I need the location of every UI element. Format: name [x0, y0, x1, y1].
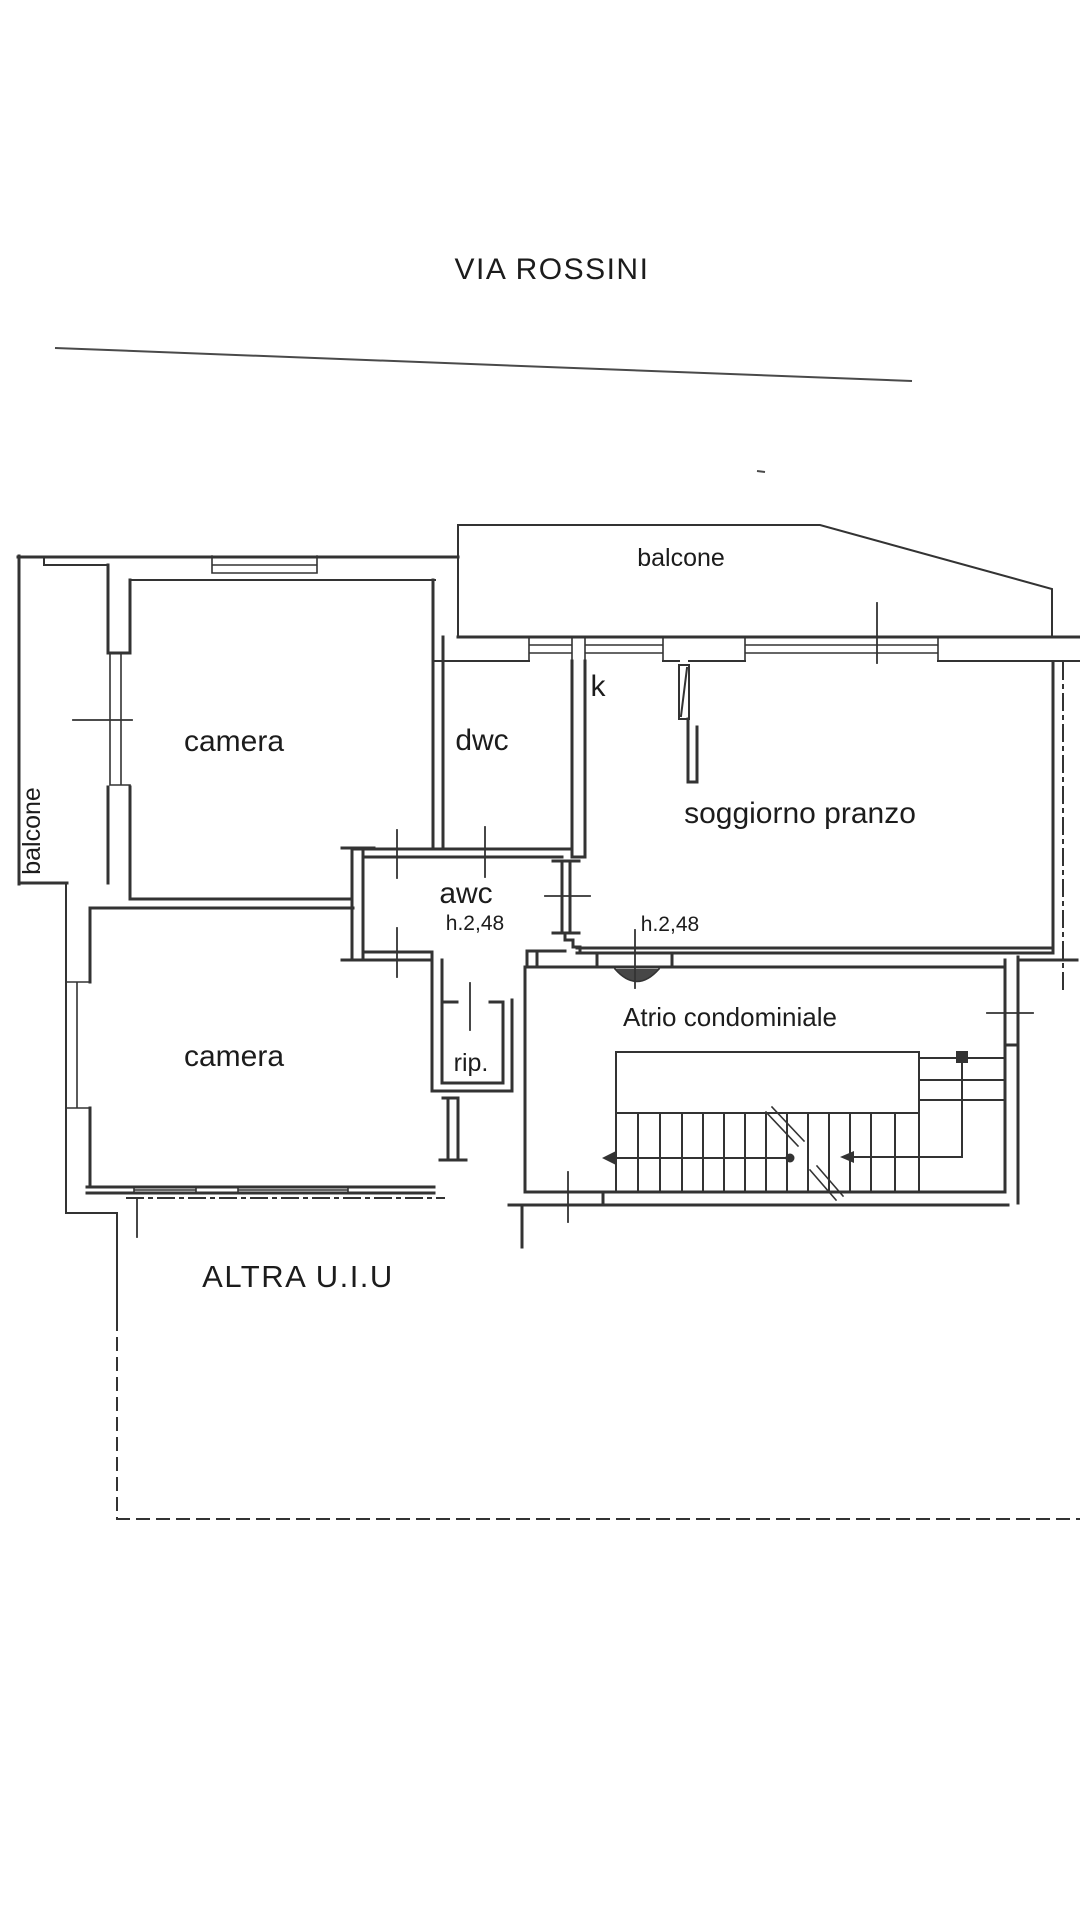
bedroom-bottom-label: camera	[184, 1040, 284, 1073]
street-name-label: VIA ROSSINI	[455, 253, 650, 286]
other-unit-dashed-boundary	[117, 1318, 1080, 1519]
entrance-door-arc	[615, 969, 659, 982]
door-tick-marks	[73, 603, 1033, 1237]
window-symbols	[66, 556, 938, 1193]
labels: VIA ROSSINI balcone camera dwc k soggior…	[18, 253, 916, 1294]
staircase	[602, 1051, 1005, 1200]
height-note-b-label: h.2,48	[641, 913, 699, 936]
stair-arrow-up-head	[840, 1151, 854, 1163]
stair-arrow-down-head	[602, 1151, 616, 1165]
atrium-label: Atrio condominiale	[623, 1002, 837, 1032]
exterior-walls	[18, 556, 1080, 1193]
stair-break-marks	[766, 1107, 843, 1200]
floorplan-page: VIA ROSSINI balcone camera dwc k soggior…	[0, 0, 1080, 1920]
dwc-label: dwc	[455, 724, 508, 757]
balcony-top-label: balcone	[637, 544, 725, 572]
balcony-top-outline	[458, 525, 1052, 636]
living-room-label: soggiorno pranzo	[684, 797, 916, 830]
awc-label: awc	[439, 877, 492, 910]
interior-walls	[90, 580, 697, 1160]
stair-arrow-origin-dot	[786, 1154, 795, 1163]
height-note-a-label: h.2,48	[446, 912, 504, 935]
other-unit-label: ALTRA U.I.U	[202, 1259, 394, 1294]
storage-label: rip.	[454, 1049, 489, 1077]
balcony-left-label: balcone	[18, 787, 46, 875]
stair-newel-post	[956, 1051, 968, 1063]
bedroom-top-label: camera	[184, 725, 284, 758]
street-line	[55, 348, 912, 472]
atrium-walls	[509, 957, 1077, 1247]
floor-plan-canvas: VIA ROSSINI balcone camera dwc k soggior…	[0, 0, 1080, 1920]
kitchen-label: k	[591, 670, 607, 703]
